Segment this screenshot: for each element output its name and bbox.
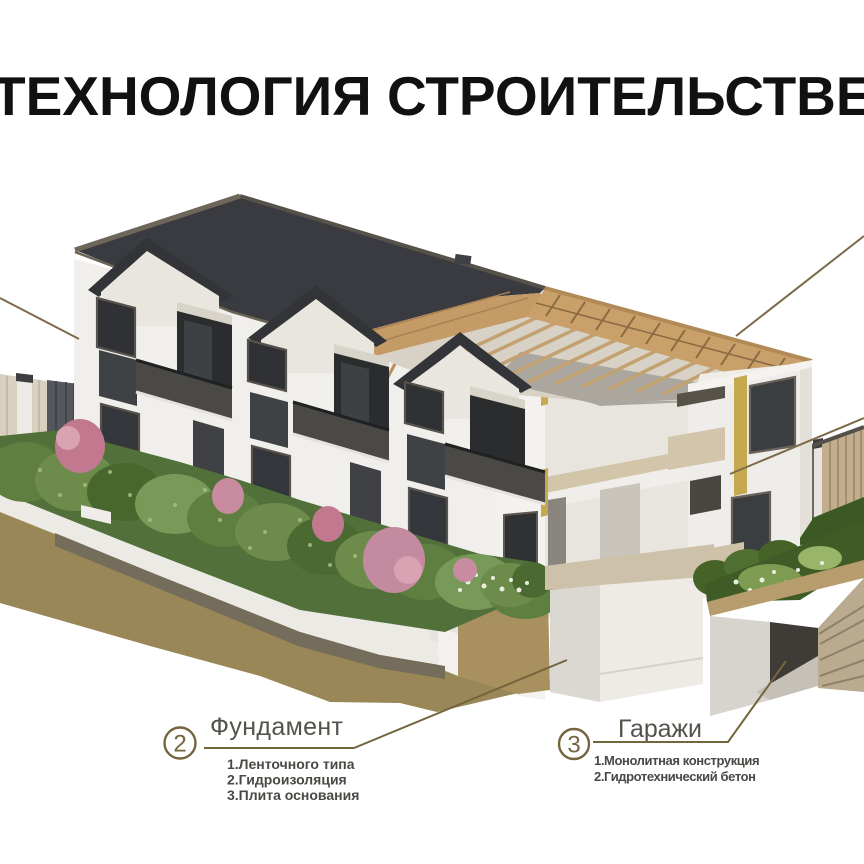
svg-text:2.Гидроизоляция: 2.Гидроизоляция	[227, 772, 347, 788]
svg-text:2.Гидротехнический бетон: 2.Гидротехнический бетон	[594, 769, 756, 784]
svg-text:1.Ленточного типа: 1.Ленточного типа	[227, 756, 355, 772]
svg-text:ТЕХНОЛОГИЯ СТРОИТЕЛЬСТВЕ: ТЕХНОЛОГИЯ СТРОИТЕЛЬСТВЕ	[0, 65, 864, 127]
svg-text:3.Плита основания: 3.Плита основания	[227, 787, 359, 803]
svg-text:1.Монолитная конструкция: 1.Монолитная конструкция	[594, 753, 759, 768]
svg-text:3: 3	[567, 732, 580, 759]
svg-text:2: 2	[173, 731, 186, 758]
svg-text:Гаражи: Гаражи	[618, 715, 702, 743]
svg-text:Фундамент: Фундамент	[210, 713, 344, 741]
